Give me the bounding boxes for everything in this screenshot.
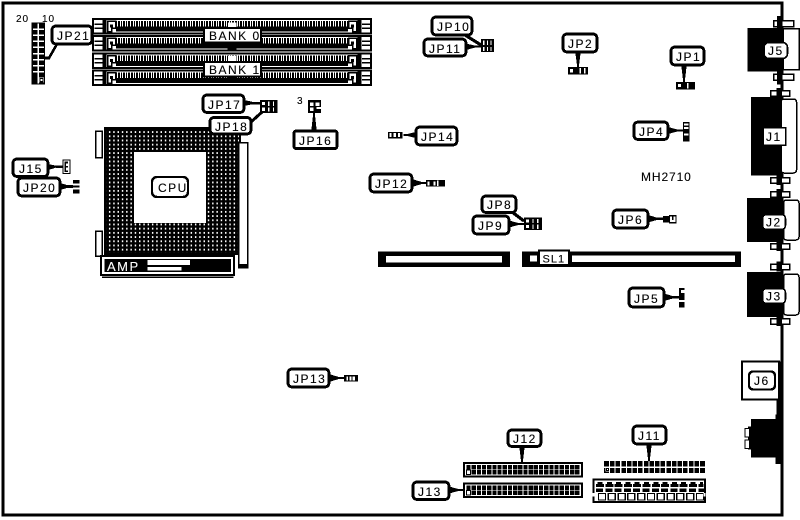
svg-text:3: 3 [297, 96, 304, 107]
svg-text:JP18: JP18 [215, 120, 248, 134]
svg-text:JP10: JP10 [437, 20, 470, 34]
svg-text:J6: J6 [754, 374, 770, 388]
svg-text:AMP: AMP [107, 259, 140, 274]
svg-text:J15: J15 [19, 162, 43, 176]
svg-text:JP16: JP16 [299, 134, 332, 148]
svg-text:BANK 0: BANK 0 [209, 29, 261, 43]
svg-text:JP20: JP20 [23, 181, 56, 195]
svg-text:J13: J13 [418, 485, 442, 499]
svg-text:JP6: JP6 [618, 213, 643, 227]
svg-text:J1: J1 [766, 130, 782, 144]
svg-text:J5: J5 [768, 44, 784, 58]
svg-text:J12: J12 [513, 432, 537, 446]
svg-text:MH2710: MH2710 [641, 170, 692, 184]
svg-text:JP4: JP4 [639, 125, 664, 139]
svg-text:BANK 1: BANK 1 [209, 63, 261, 77]
svg-text:J2: J2 [766, 216, 782, 230]
svg-text:JP2: JP2 [568, 37, 593, 51]
svg-text:JP1: JP1 [676, 50, 701, 64]
svg-text:JP5: JP5 [634, 292, 659, 306]
svg-text:JP12: JP12 [375, 177, 408, 191]
svg-text:JP11: JP11 [429, 42, 461, 56]
svg-text:J3: J3 [766, 290, 782, 304]
svg-text:SL1: SL1 [543, 254, 566, 266]
svg-text:J11: J11 [638, 429, 661, 443]
svg-text:20: 20 [16, 14, 29, 25]
svg-text:JP21: JP21 [57, 29, 90, 43]
svg-text:JP8: JP8 [487, 198, 512, 212]
svg-text:JP9: JP9 [478, 219, 503, 233]
svg-text:JP17: JP17 [208, 98, 241, 112]
svg-text:CPU: CPU [158, 181, 188, 195]
svg-text:JP14: JP14 [421, 130, 454, 144]
svg-text:JP13: JP13 [293, 372, 326, 386]
